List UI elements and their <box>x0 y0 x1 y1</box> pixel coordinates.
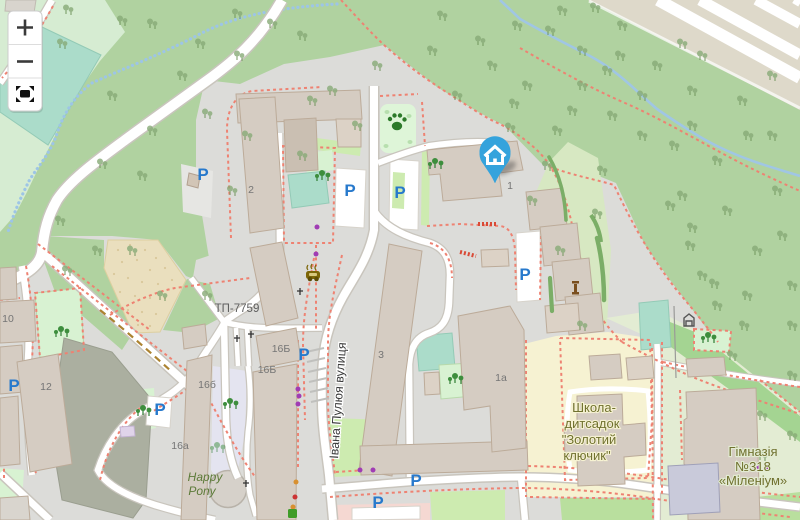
svg-text:ключик": ключик" <box>563 448 611 463</box>
svg-text:12: 12 <box>40 381 52 393</box>
svg-text:Гімназія: Гімназія <box>728 444 777 459</box>
svg-text:Pony: Pony <box>188 484 216 498</box>
svg-text:Школа-: Школа- <box>572 400 616 415</box>
svg-text:№318: №318 <box>735 459 771 474</box>
svg-text:P: P <box>154 400 165 419</box>
svg-text:3: 3 <box>378 349 384 361</box>
svg-text:1а: 1а <box>495 372 507 384</box>
svg-text:16а: 16а <box>171 440 189 452</box>
svg-text:16Б: 16Б <box>258 364 277 376</box>
svg-text:P: P <box>344 181 355 200</box>
svg-text:P: P <box>410 471 421 490</box>
svg-text:"Золотий: "Золотий <box>562 432 617 447</box>
svg-text:P: P <box>197 165 208 184</box>
svg-text:2: 2 <box>248 184 254 196</box>
svg-text:P: P <box>519 265 530 284</box>
svg-text:1: 1 <box>507 180 513 192</box>
svg-text:P: P <box>372 493 383 512</box>
svg-text:«Міленіум»: «Міленіум» <box>719 473 787 488</box>
svg-text:дитсадок: дитсадок <box>565 416 620 431</box>
svg-text:16б: 16б <box>198 379 216 391</box>
svg-text:P: P <box>298 345 309 364</box>
svg-text:10: 10 <box>2 313 14 325</box>
svg-text:16Б: 16Б <box>272 343 291 355</box>
svg-text:P: P <box>394 183 405 202</box>
svg-text:P: P <box>8 376 19 395</box>
svg-text:Happy: Happy <box>188 470 224 484</box>
svg-text:ТП-7759: ТП-7759 <box>215 303 260 315</box>
